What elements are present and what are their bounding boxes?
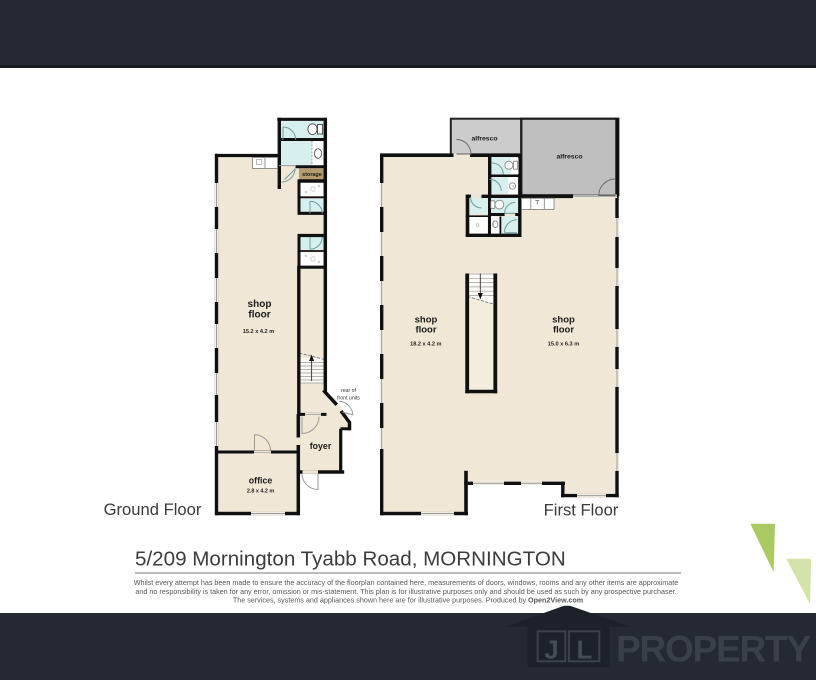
svg-text:office: office (249, 476, 273, 486)
svg-text:L: L (577, 635, 593, 665)
svg-text:2.8 x 4.2 m: 2.8 x 4.2 m (247, 489, 274, 495)
svg-text:15.2 x 4.2 m: 15.2 x 4.2 m (243, 329, 274, 335)
svg-text:alfresco: alfresco (556, 154, 582, 161)
svg-text:15.0 x 6.3 m: 15.0 x 6.3 m (548, 342, 579, 348)
svg-text:alfresco: alfresco (471, 136, 497, 143)
svg-text:5/209 Mornington Tyabb Road, M: 5/209 Mornington Tyabb Road, MORNINGTON (135, 548, 566, 571)
svg-text:front units: front units (337, 396, 360, 402)
svg-text:First Floor: First Floor (544, 501, 619, 520)
svg-text:PROPERTY: PROPERTY (616, 629, 811, 670)
svg-text:rear of: rear of (341, 388, 357, 394)
svg-text:Ground Floor: Ground Floor (104, 500, 202, 519)
svg-text:J: J (544, 635, 558, 665)
svg-text:floor: floor (553, 325, 574, 336)
svg-text:shop: shop (248, 299, 272, 310)
svg-text:The services, systems and appl: The services, systems and appliances sho… (233, 595, 583, 604)
svg-text:foyer: foyer (310, 441, 332, 451)
svg-text:18.2 x 4.2 m: 18.2 x 4.2 m (410, 342, 441, 348)
svg-text:storage: storage (302, 172, 321, 178)
svg-text:floor: floor (248, 310, 270, 321)
svg-text:floor: floor (415, 325, 436, 336)
